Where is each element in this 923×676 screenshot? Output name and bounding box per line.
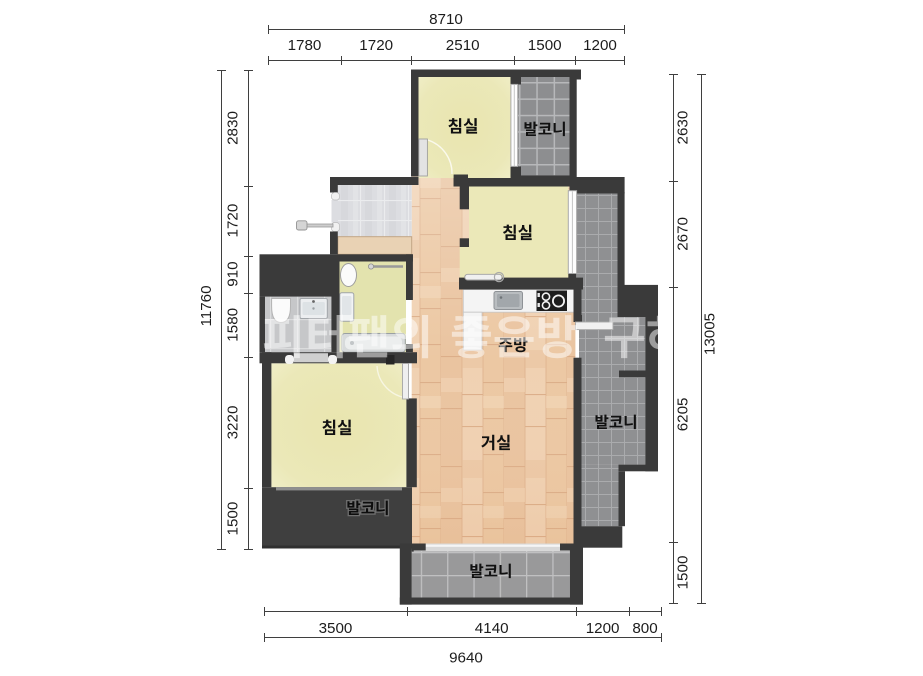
svg-text:1780: 1780 bbox=[288, 37, 322, 54]
svg-text:3220: 3220 bbox=[225, 406, 242, 440]
svg-text:3500: 3500 bbox=[319, 620, 353, 637]
svg-text:6205: 6205 bbox=[675, 398, 692, 432]
svg-text:1500: 1500 bbox=[225, 502, 242, 536]
svg-text:2670: 2670 bbox=[675, 217, 692, 251]
svg-text:1580: 1580 bbox=[225, 308, 242, 342]
svg-text:1500: 1500 bbox=[675, 556, 692, 590]
svg-text:2510: 2510 bbox=[446, 37, 480, 54]
svg-text:4140: 4140 bbox=[475, 620, 509, 637]
svg-text:1500: 1500 bbox=[528, 37, 562, 54]
svg-text:2630: 2630 bbox=[675, 111, 692, 145]
svg-text:1200: 1200 bbox=[583, 37, 617, 54]
svg-text:8710: 8710 bbox=[429, 11, 463, 28]
svg-text:1720: 1720 bbox=[225, 204, 242, 238]
svg-text:9640: 9640 bbox=[449, 650, 483, 667]
svg-text:910: 910 bbox=[225, 261, 242, 286]
svg-text:11760: 11760 bbox=[198, 285, 215, 326]
svg-text:1720: 1720 bbox=[359, 37, 393, 54]
svg-text:13005: 13005 bbox=[702, 313, 719, 355]
svg-text:2830: 2830 bbox=[225, 111, 242, 145]
svg-text:1200: 1200 bbox=[586, 620, 620, 637]
svg-text:800: 800 bbox=[632, 620, 657, 637]
